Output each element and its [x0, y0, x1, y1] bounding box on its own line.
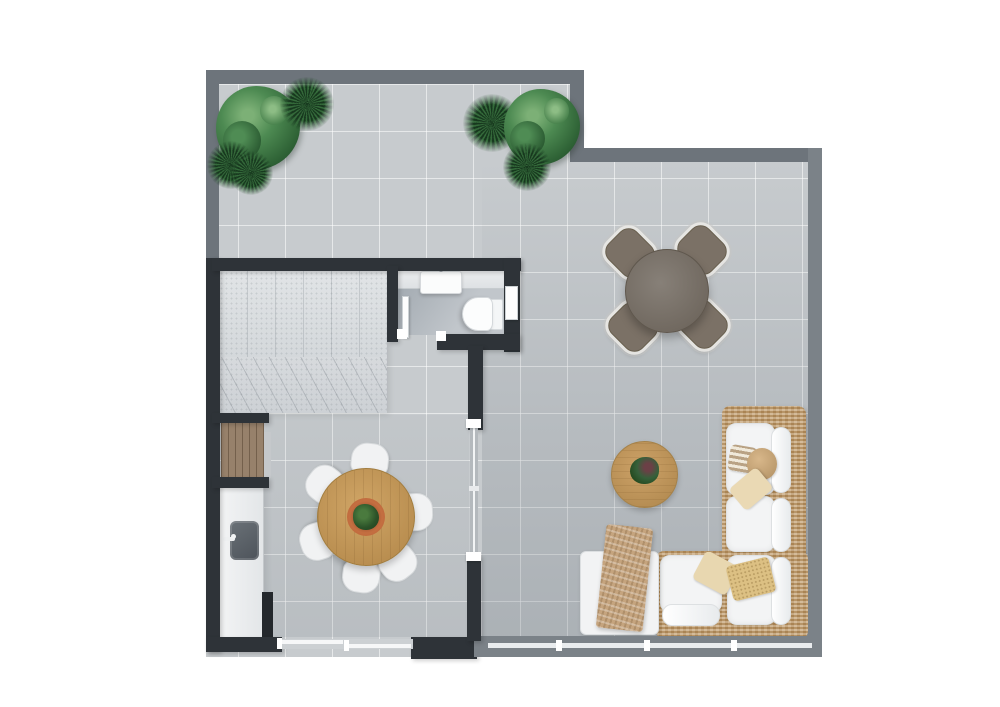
exterior-wall-bottom-left: [206, 637, 282, 652]
floor-plan-canvas: [0, 0, 1000, 707]
sliding-door-panel: [346, 644, 411, 648]
sofa-backrest: [662, 604, 720, 626]
sliding-door-handle: [344, 640, 349, 651]
glass-slider-mullion: [469, 486, 479, 491]
kitchen-counter: [219, 487, 264, 637]
glass-slider-cap: [466, 419, 481, 428]
sliding-door-handle: [731, 640, 737, 651]
sliding-door-handle: [277, 638, 282, 649]
sliding-door-handle: [644, 640, 650, 651]
stair-upper-flight: [219, 271, 387, 357]
door-jamb: [397, 329, 407, 339]
kitchen-faucet-base: [231, 534, 236, 539]
sliding-door-handle: [556, 640, 562, 651]
table-centerpiece-plant: [353, 504, 379, 530]
kitchen-sink: [230, 521, 259, 560]
wood-cabinet: [221, 423, 264, 478]
coffee-table-plant: [630, 457, 659, 484]
toilet: [462, 297, 493, 331]
bathroom-door-east-leaf: [505, 286, 518, 320]
glass-slider-cap: [466, 552, 481, 561]
sofa-backrest: [771, 498, 791, 552]
kitchen-appliance: [262, 592, 273, 638]
door-jamb: [436, 331, 446, 341]
stair-winder-steps: [219, 357, 387, 413]
sliding-door-panel: [279, 640, 343, 644]
interior-wall-core-top: [212, 258, 521, 271]
staircase-room: [219, 271, 387, 413]
cabinet-niche-wall-top: [212, 413, 269, 423]
interior-divider-wall-lower: [467, 555, 481, 641]
exterior-wall-left-lower: [206, 258, 220, 652]
exterior-wall-top-right: [570, 148, 822, 162]
lounge-sliding-glass-line: [488, 643, 812, 648]
interior-divider-wall-upper: [468, 346, 483, 430]
bathroom-sink: [420, 271, 462, 294]
exterior-wall-right: [808, 148, 822, 657]
cabinet-niche-wall-bottom: [212, 477, 269, 488]
outdoor-dining-table: [625, 249, 709, 333]
wood-cabinet-side-panel: [264, 432, 271, 478]
exterior-wall-top: [206, 70, 584, 84]
